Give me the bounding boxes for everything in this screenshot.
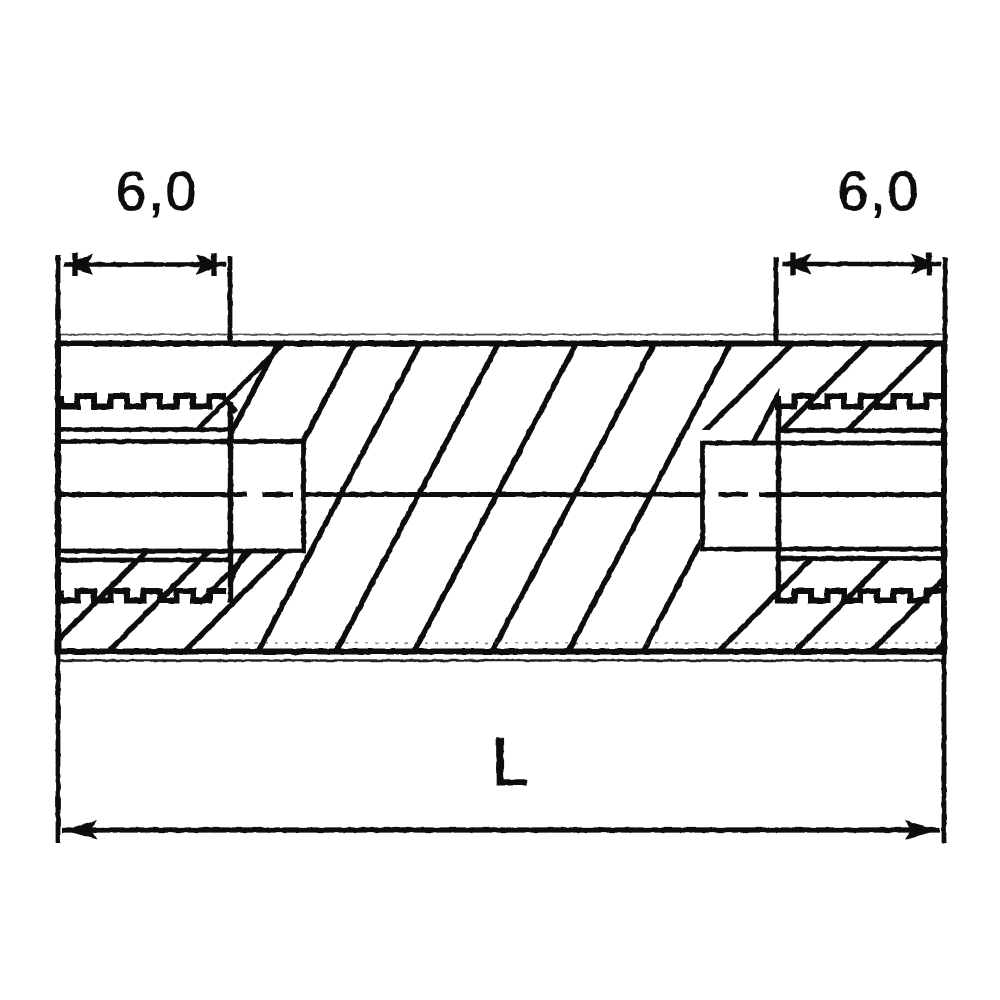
- svg-text:6,0: 6,0: [838, 160, 920, 222]
- svg-text:6,0: 6,0: [116, 160, 198, 222]
- svg-text:L: L: [491, 724, 529, 800]
